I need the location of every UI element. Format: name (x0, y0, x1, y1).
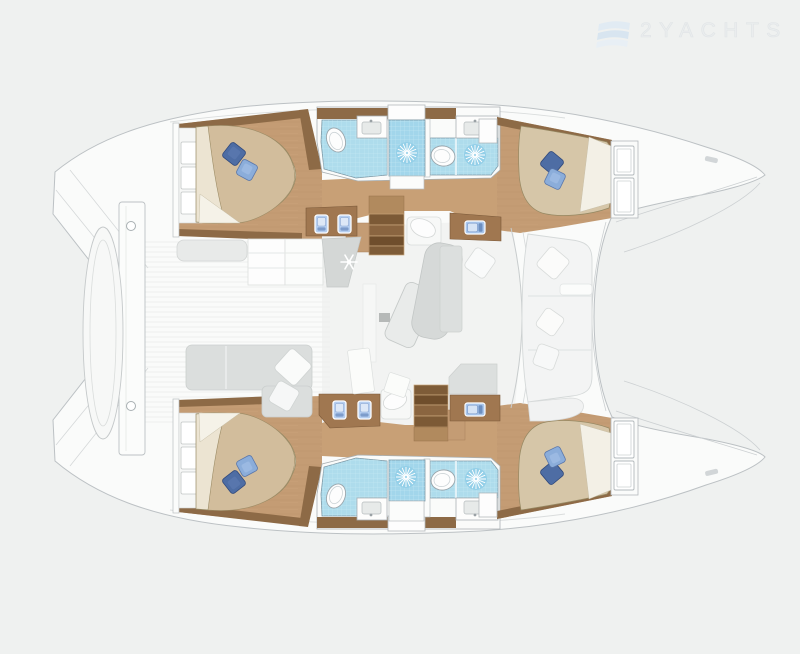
svg-text:2YACHTS: 2YACHTS (640, 19, 788, 42)
